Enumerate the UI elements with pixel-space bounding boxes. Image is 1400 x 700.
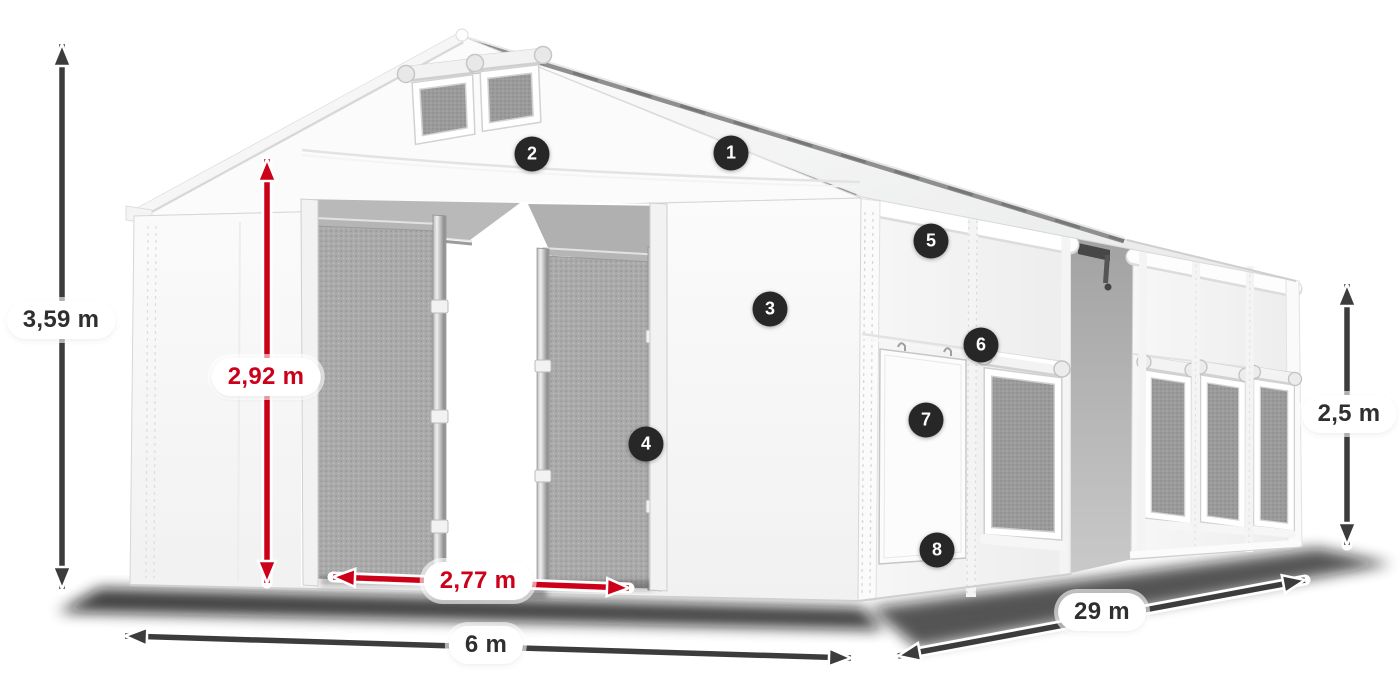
side-window-2 (1137, 355, 1199, 527)
inner-partition-right (535, 247, 663, 591)
callout-badge-7: 7 (909, 403, 944, 438)
dimension-label-wall-height: 2,5 m (1302, 395, 1397, 433)
callout-badge-8: 8 (920, 533, 955, 568)
callout-badge-4: 4 (629, 427, 664, 462)
dimension-label-entrance-height: 2,92 m (212, 358, 321, 396)
inner-partition-left (315, 215, 448, 585)
side-window-1 (976, 349, 1070, 546)
side-door (879, 343, 966, 564)
dimension-label-entrance-width: 2,77 m (424, 562, 533, 600)
side-window-4 (1248, 366, 1302, 535)
dimension-label-total-height: 3,59 m (7, 301, 116, 339)
callout-badge-6: 6 (964, 328, 999, 363)
side-window-3 (1193, 360, 1253, 531)
side-opening (1071, 236, 1133, 573)
tent-dimension-diagram: 3,59 m 2,92 m 2,77 m 6 m 29 m 2,5 m 1 2 … (0, 0, 1400, 700)
callout-badge-5: 5 (914, 224, 949, 259)
dimension-label-front-width: 6 m (449, 626, 523, 664)
entrance-interior (301, 199, 667, 598)
entrance-right-jamb (650, 203, 667, 591)
callout-badge-1: 1 (714, 136, 749, 171)
callout-badge-2: 2 (515, 137, 550, 172)
dimension-label-side-length: 29 m (1058, 593, 1146, 631)
callout-badge-3: 3 (753, 292, 788, 327)
tent-illustration (0, 0, 1400, 700)
